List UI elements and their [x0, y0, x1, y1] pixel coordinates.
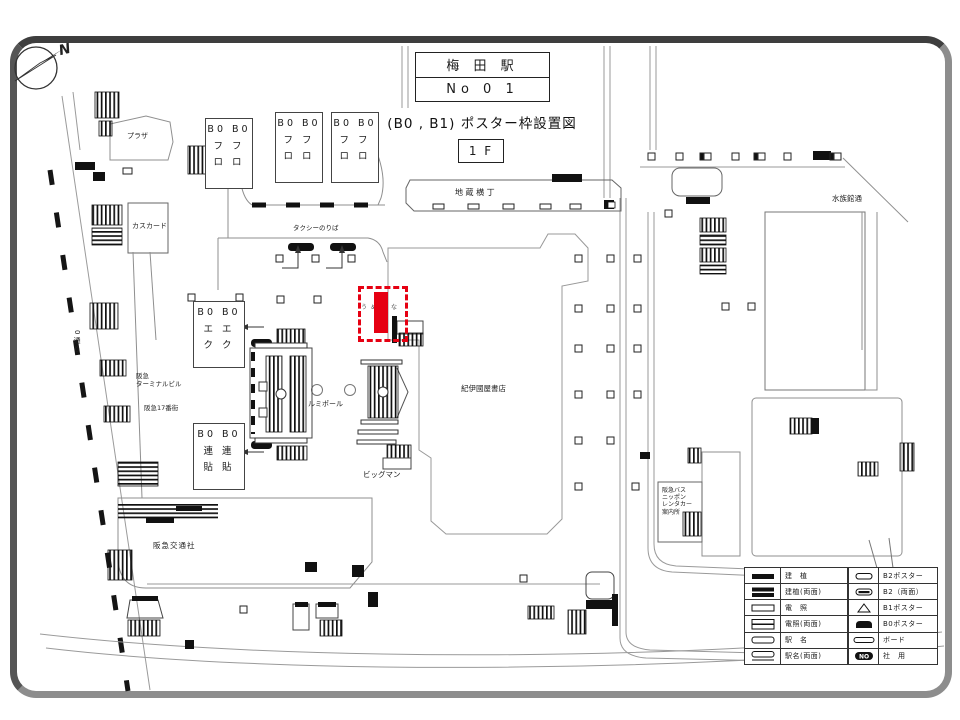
compass-icon [15, 47, 63, 89]
legend-label: 駅 名 [781, 633, 847, 649]
label-cascade: カスカード [132, 222, 167, 231]
legend-symbol-b0-poster [849, 616, 879, 632]
legend-label: 電照(両面) [781, 616, 847, 632]
drawing-subtitle: (B0 , B1) ポスター枠設置図 [352, 112, 612, 132]
label-plaza: プラザ [127, 132, 148, 141]
legend-symbol-kenshoku-double [745, 584, 781, 600]
legend-symbol-densho [745, 600, 781, 616]
legend-symbol-kenshoku [745, 568, 781, 584]
legend-symbol-densho-double [745, 616, 781, 632]
poster-box-renbari: B0 B0 連 連 貼 貼 [193, 423, 245, 490]
label-bus-info: 阪急バス ニッポン レンタカー 案内所 [662, 487, 692, 516]
legend-table-right: B2ポスター B2（両面） B1ポスター B0ポスター ボード NO 社 用 [848, 567, 938, 665]
label-bigman: ビッグマン [363, 470, 401, 480]
poster-box-furo-3: B0 B0 フ フ ロ ロ [331, 112, 379, 183]
label-suizokukan-dori: 水族館通 [832, 194, 862, 204]
label-taxi-stand: タクシーのりば [293, 224, 339, 232]
legend-symbol-b1-poster [849, 600, 879, 616]
legend-symbol-ekimei [745, 633, 781, 649]
legend-table-left: 建 植 建植(両面) 電 照 電照(両面) 駅 名 駅名(両面) [744, 567, 848, 665]
poster-box-furo-2: B0 B0 フ フ ロ ロ [275, 112, 323, 183]
label-street-0: 0通り [72, 330, 81, 354]
svg-text:NO: NO [858, 654, 868, 661]
poster-box-furo-1: B0 B0 フ フ ロ ロ [205, 118, 253, 189]
sheet-number: No 0 1 [416, 78, 549, 102]
label-hankyu-terminal: 阪急 ターミナルビル [136, 372, 182, 389]
legend-symbol-b2-double [849, 584, 879, 600]
highlight-dashed-box [358, 286, 408, 342]
legend-symbol-b2-poster [849, 568, 879, 584]
poster-box-eku: B0 B0 エ エ ク ク [193, 301, 245, 368]
pillars-group [123, 153, 841, 613]
legend-label: 建植(両面) [781, 584, 847, 600]
floor-indicator: 1 F [458, 139, 504, 163]
station-name: 梅 田 駅 [416, 53, 549, 78]
label-lumipole: ルミポール [308, 400, 343, 409]
legend-label: B2ポスター [879, 568, 937, 584]
legend-symbol-board [849, 633, 879, 649]
legend-label: 建 植 [781, 568, 847, 584]
label-kinokuniya: 紀伊國屋書店 [461, 384, 506, 394]
label-hankyu-17bangai: 阪急17番街 [144, 404, 178, 412]
label-hankyu-kotsusha: 阪急交通社 [153, 541, 196, 551]
legend-label: 駅名(両面) [781, 649, 847, 664]
station-map-page: N 梅 田 駅 No 0 1 (B0 , B1) ポスター枠設置図 1 F B0… [0, 0, 960, 720]
legend-label: ボード [879, 633, 937, 649]
legend-symbol-company-use: NO [849, 649, 879, 664]
legend-label: B2（両面） [879, 584, 937, 600]
title-block: 梅 田 駅 No 0 1 [415, 52, 550, 102]
legend-label: B0ポスター [879, 616, 937, 632]
legend-label: 電 照 [781, 600, 847, 616]
legend-symbol-ekimei-double [745, 649, 781, 664]
buildings-group [110, 116, 908, 630]
structure-lines-group [241, 205, 893, 568]
legend-label: B1ポスター [879, 600, 937, 616]
label-jizo-yokocho: 地 蔵 横 丁 [455, 188, 495, 198]
legend-label: 社 用 [879, 649, 937, 664]
